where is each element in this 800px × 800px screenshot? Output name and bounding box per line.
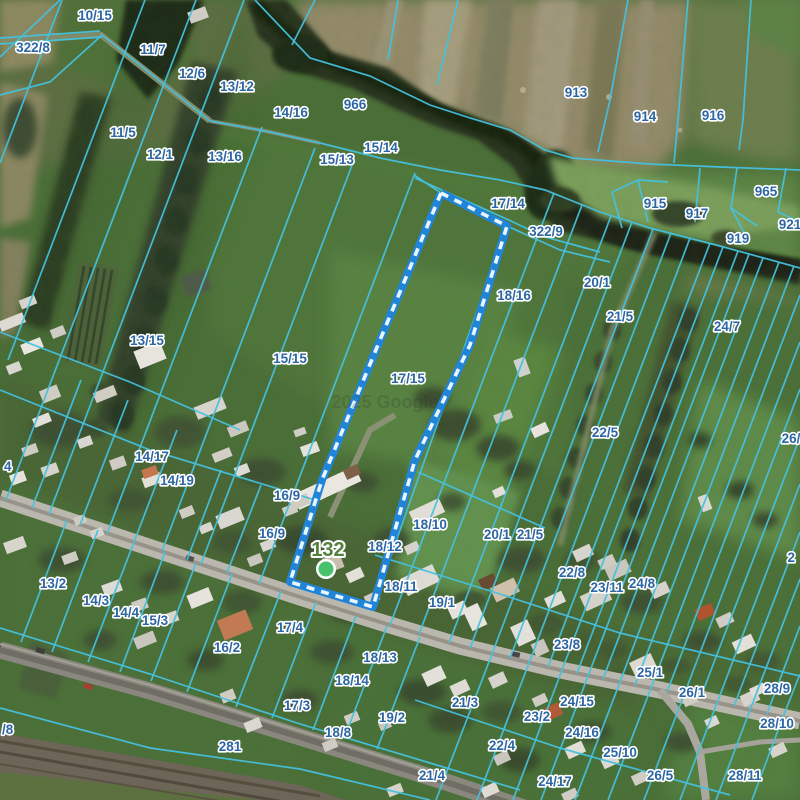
svg-text:26/5: 26/5 [647, 768, 674, 783]
svg-text:13/15: 13/15 [130, 333, 164, 348]
svg-text:18/16: 18/16 [497, 288, 531, 303]
svg-text:15/15: 15/15 [273, 351, 307, 366]
svg-text:24/17: 24/17 [538, 774, 572, 789]
svg-text:15/13: 15/13 [320, 152, 354, 167]
svg-text:17/4: 17/4 [277, 620, 304, 635]
svg-text:28/11: 28/11 [728, 768, 762, 783]
svg-text:14/19: 14/19 [160, 473, 194, 488]
svg-text:12/1: 12/1 [147, 147, 174, 162]
svg-text:12/6: 12/6 [179, 66, 206, 81]
svg-text:17/3: 17/3 [284, 698, 311, 713]
svg-text:14/17: 14/17 [135, 449, 169, 464]
svg-text:16/9: 16/9 [274, 488, 300, 503]
svg-text:24/7: 24/7 [714, 319, 740, 334]
svg-text:20/1: 20/1 [484, 527, 511, 542]
svg-text:21/4: 21/4 [419, 768, 446, 783]
svg-text:23/2: 23/2 [524, 709, 550, 724]
svg-text:915: 915 [644, 196, 667, 211]
svg-text:16/2: 16/2 [214, 640, 240, 655]
svg-text:2025 Google: 2025 Google [331, 392, 438, 412]
svg-text:919: 919 [727, 231, 750, 246]
svg-text:13/16: 13/16 [208, 149, 242, 164]
svg-text:322/9: 322/9 [529, 224, 563, 239]
svg-text:10/15: 10/15 [78, 8, 112, 23]
svg-text:13/2: 13/2 [40, 576, 66, 591]
svg-text:24/15: 24/15 [560, 694, 594, 709]
svg-text:23/11: 23/11 [590, 580, 624, 595]
svg-text:/8: /8 [2, 722, 14, 737]
svg-text:18/12: 18/12 [368, 539, 402, 554]
svg-text:966: 966 [344, 97, 367, 112]
svg-text:16/9: 16/9 [259, 526, 285, 541]
svg-text:20/1: 20/1 [584, 275, 611, 290]
svg-text:965: 965 [755, 184, 778, 199]
svg-text:917: 917 [686, 206, 709, 221]
svg-text:18/8: 18/8 [325, 725, 352, 740]
svg-text:913: 913 [565, 85, 588, 100]
svg-text:19/1: 19/1 [429, 595, 456, 610]
svg-text:17/14: 17/14 [491, 196, 525, 211]
svg-text:24/16: 24/16 [565, 725, 599, 740]
svg-text:19/2: 19/2 [379, 710, 405, 725]
svg-text:18/14: 18/14 [335, 673, 369, 688]
svg-text:13/12: 13/12 [220, 79, 254, 94]
svg-text:28/10: 28/10 [760, 716, 794, 731]
svg-text:11/7: 11/7 [140, 42, 166, 57]
svg-text:916: 916 [702, 108, 725, 123]
svg-text:11/5: 11/5 [110, 125, 136, 140]
svg-text:914: 914 [634, 109, 657, 124]
svg-text:23/8: 23/8 [554, 637, 581, 652]
svg-text:26/1: 26/1 [679, 685, 706, 700]
svg-text:18/10: 18/10 [413, 517, 447, 532]
svg-text:281: 281 [219, 739, 242, 754]
svg-text:22/4: 22/4 [489, 738, 516, 753]
svg-text:22/5: 22/5 [592, 425, 619, 440]
svg-text:26/: 26/ [782, 431, 800, 446]
svg-text:28/9: 28/9 [764, 681, 790, 696]
svg-text:322/8: 322/8 [16, 40, 50, 55]
svg-text:14/16: 14/16 [274, 105, 308, 120]
svg-text:14/4: 14/4 [113, 605, 140, 620]
svg-text:15/14: 15/14 [364, 140, 398, 155]
svg-text:18/13: 18/13 [363, 650, 397, 665]
svg-text:18/11: 18/11 [384, 579, 418, 594]
svg-text:25/10: 25/10 [603, 745, 637, 760]
svg-text:15/3: 15/3 [142, 613, 169, 628]
svg-text:14/3: 14/3 [83, 593, 110, 608]
svg-text:4: 4 [4, 459, 12, 474]
svg-text:921: 921 [779, 217, 800, 232]
svg-text:2: 2 [787, 550, 795, 565]
svg-text:21/5: 21/5 [607, 309, 634, 324]
svg-text:25/1: 25/1 [637, 665, 664, 680]
svg-text:21/5: 21/5 [517, 527, 544, 542]
svg-text:21/3: 21/3 [452, 695, 479, 710]
svg-text:24/8: 24/8 [629, 576, 656, 591]
svg-text:132: 132 [311, 539, 344, 561]
svg-text:22/8: 22/8 [559, 565, 586, 580]
svg-text:17/15: 17/15 [391, 371, 425, 386]
